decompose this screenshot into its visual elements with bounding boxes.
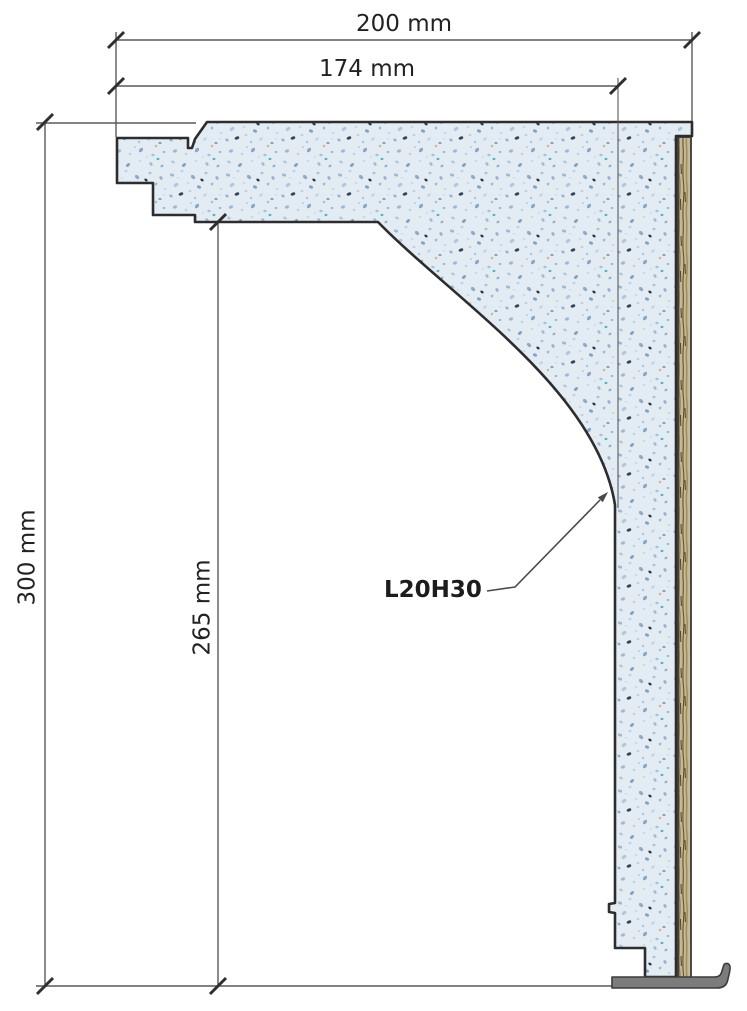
- dim-label-inner-width: 174 mm: [307, 58, 427, 81]
- dim-label-total-width: 200 mm: [344, 13, 464, 36]
- drawing-canvas: 200 mm 174 mm 300 mm 265 mm L20H30: [0, 0, 747, 1011]
- dim-label-inner-height: 265 mm: [192, 548, 215, 668]
- leader-line: [487, 492, 608, 591]
- dim-label-total-height: 300 mm: [17, 498, 40, 618]
- part-label: L20H30: [384, 579, 482, 602]
- section-drawing: [0, 0, 747, 1011]
- wall-batten: [678, 137, 691, 982]
